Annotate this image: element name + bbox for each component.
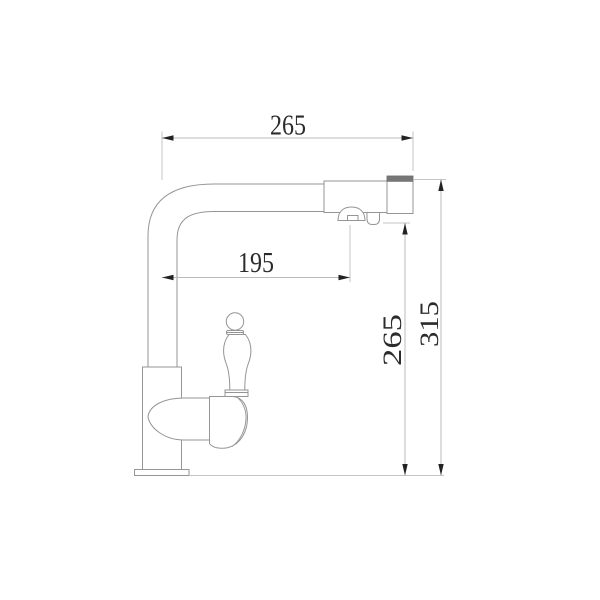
dimension-value-outlet-height: 265 (378, 314, 407, 366)
handle-collar (225, 390, 248, 397)
arrowhead-down-icon (402, 464, 407, 476)
arrowhead-up-icon (438, 180, 443, 192)
dimension-value-overall-height: 315 (415, 301, 444, 347)
faucet-figure (135, 176, 414, 476)
faucet-base-flange (135, 470, 190, 476)
arrowhead-right-icon (339, 275, 351, 280)
arrowhead-up-icon (402, 223, 407, 235)
faucet-technical-drawing: 265 195 265 315 (0, 0, 600, 600)
diverter-notch (348, 216, 359, 221)
dimension-spout-reach: 195 (162, 225, 350, 282)
arrowhead-right-icon (402, 135, 414, 140)
dimension-overall-height: 315 (414, 180, 446, 476)
cartridge-housing (210, 397, 248, 449)
dimension-value-spout-reach: 195 (238, 248, 274, 279)
drawing-canvas: 265 195 265 315 (0, 0, 600, 600)
arrowhead-left-icon (162, 135, 174, 140)
dimension-outlet-height: 265 (378, 223, 410, 476)
outlet-piece (367, 213, 380, 225)
aerator-cap-band (387, 176, 413, 182)
dimension-value-top-width: 265 (270, 111, 306, 142)
arrowhead-down-icon (438, 464, 443, 476)
handle-baluster (224, 335, 251, 391)
dimension-top-width: 265 (162, 111, 413, 181)
handle-ball (226, 313, 243, 330)
